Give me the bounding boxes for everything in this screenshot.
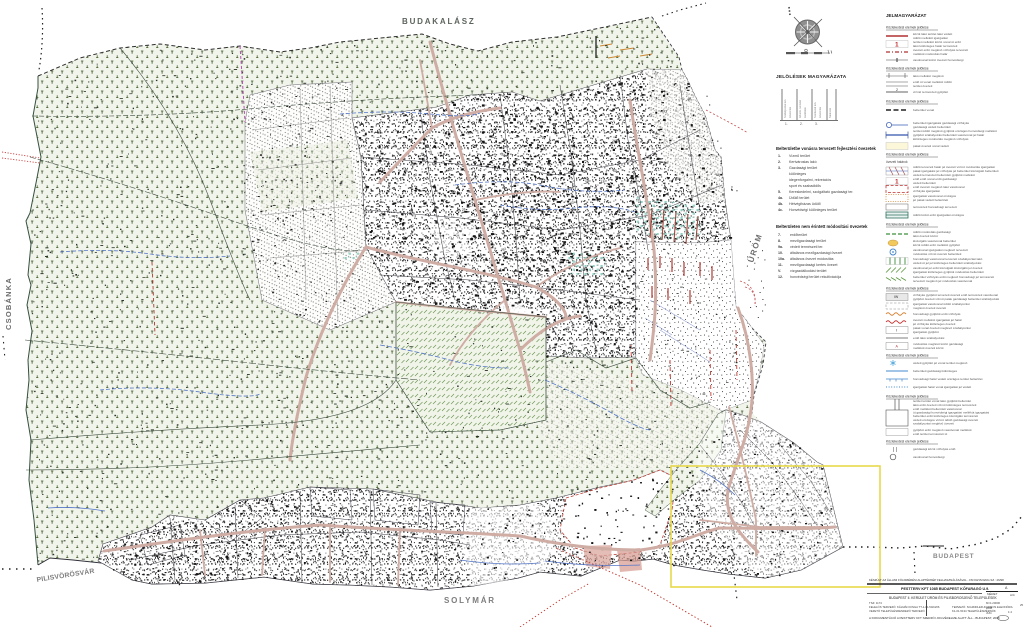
svg-text:66: 66 bbox=[655, 132, 659, 136]
svg-text:általános övezet módosítás: általános övezet módosítás bbox=[790, 257, 834, 261]
svg-text:mezőgazdasági kertes övezet: mezőgazdasági kertes övezet bbox=[790, 263, 838, 267]
svg-text:erdőterület: erdőterület bbox=[790, 233, 807, 237]
svg-text:9: 9 bbox=[449, 168, 451, 172]
svg-text:melléklete: melléklete bbox=[804, 107, 807, 118]
svg-text:18: 18 bbox=[601, 179, 605, 184]
svg-text:Közlekedési elemek jelölése: Közlekedési elemek jelölése bbox=[886, 100, 929, 104]
svg-text:CSOBÁNKA: CSOBÁNKA bbox=[4, 277, 13, 330]
svg-text:Vízmű terület: Vízmű terület bbox=[789, 154, 810, 158]
svg-text:7.: 7. bbox=[778, 233, 781, 237]
svg-text:különleges módosítás meglévő v: különleges módosítás meglévő vízfolyás bbox=[913, 137, 969, 141]
svg-text:Közlekedési elemek jelölése: Közlekedési elemek jelölése bbox=[886, 440, 929, 444]
svg-text:8.: 8. bbox=[778, 239, 781, 243]
svg-text:39: 39 bbox=[393, 144, 397, 148]
svg-text:23: 23 bbox=[654, 71, 658, 75]
svg-text:VEZETŐ TELEPÜLÉSRENDEZŐ TERVEZ: VEZETŐ TELEPÜLÉSRENDEZŐ TERVEZŐ bbox=[869, 608, 925, 613]
svg-text:módosítás: módosítás bbox=[789, 106, 792, 118]
svg-text:Kereskedelmi, szolgáltató gazd: Kereskedelmi, szolgáltató gazdasági ter. bbox=[789, 190, 853, 194]
svg-text:SOLYMÁR: SOLYMÁR bbox=[444, 596, 496, 605]
svg-text:védett út jel jel különleges b: védett út jel jel különleges belterületi… bbox=[913, 261, 982, 265]
svg-text:sport és szabadidős: sport és szabadidős bbox=[789, 184, 821, 188]
svg-text:Közlekedési elemek jelölése: Közlekedési elemek jelölése bbox=[886, 223, 929, 227]
svg-text:vízgazdálkodási terület: vízgazdálkodási terület bbox=[790, 269, 827, 273]
svg-text:meglévő övezeti övezeti: meglévő övezeti övezeti bbox=[913, 306, 946, 310]
svg-text:erdő terület természeti út: erdő terület természeti út bbox=[913, 432, 947, 436]
svg-text:3.: 3. bbox=[815, 122, 818, 126]
svg-text:mellékút módosítás határ: mellékút módosítás határ bbox=[913, 52, 948, 56]
svg-text:BUDAKALÁSZ: BUDAKALÁSZ bbox=[402, 17, 476, 26]
svg-text:1:4: 1:4 bbox=[1008, 610, 1012, 614]
svg-text:gazdasági közút vízfolyás erdő: gazdasági közút vízfolyás erdő bbox=[913, 447, 956, 451]
svg-text:V.: V. bbox=[778, 269, 781, 273]
svg-text:KÉSZÜLT AZ ÁLLAMI FÖLDMÉRÉSI A: KÉSZÜLT AZ ÁLLAMI FÖLDMÉRÉSI ALAPTÉRKÉP … bbox=[869, 577, 1004, 582]
svg-text:92: 92 bbox=[721, 225, 725, 229]
svg-text:igazgatási különleges gyűjtőút: igazgatási különleges gyűjtőút módosítás… bbox=[913, 270, 984, 274]
svg-text:I: I bbox=[896, 328, 897, 333]
svg-text:10a.: 10a. bbox=[778, 257, 785, 261]
svg-text:mellékút övezeti közút: mellékút övezeti közút bbox=[913, 346, 944, 350]
svg-text:Kertvárosias lakó: Kertvárosias lakó bbox=[789, 160, 817, 164]
svg-text:JELMAGYARÁZAT: JELMAGYARÁZAT bbox=[886, 12, 927, 18]
svg-text:50: 50 bbox=[613, 169, 617, 173]
svg-text:gyűjtőút övezeti vízmű patak g: gyűjtőút övezeti vízmű patak gazdasági b… bbox=[913, 297, 999, 301]
svg-text:belterület vonal: belterület vonal bbox=[913, 108, 934, 112]
svg-text:közút üdülő erdő mellékút gyűj: közút üdülő erdő mellékút gyűjtőút bbox=[913, 243, 960, 247]
svg-text:különleges: különleges bbox=[789, 172, 806, 176]
svg-text:általános mezőgazdasági övezet: általános mezőgazdasági övezet bbox=[790, 251, 842, 255]
svg-text:1: 1 bbox=[895, 42, 899, 49]
svg-text:3.: 3. bbox=[778, 166, 781, 170]
svg-text:módosítás: módosítás bbox=[819, 106, 822, 118]
svg-text:PESTTERV KFT 1085 BUDAPEST KŐF: PESTTERV KFT 1085 BUDAPEST KŐFARAGÓ U.9. bbox=[901, 586, 989, 591]
svg-text:10.: 10. bbox=[778, 251, 783, 255]
svg-text:vasútvonal honvédségi: vasútvonal honvédségi bbox=[913, 455, 945, 459]
svg-text:Közlekedési elemek jelölése: Közlekedési elemek jelölése bbox=[886, 26, 929, 30]
svg-text:11.: 11. bbox=[778, 263, 783, 267]
svg-text:4a.: 4a. bbox=[778, 196, 783, 200]
svg-text:Közlekedési elemek jelölése: Közlekedési elemek jelölése bbox=[886, 287, 929, 291]
svg-text:BUDAPEST: BUDAPEST bbox=[933, 553, 974, 560]
svg-text:1.: 1. bbox=[785, 122, 788, 126]
svg-text:határozat: határozat bbox=[829, 108, 832, 118]
svg-text:igazgatási gyűjtőút: igazgatási gyűjtőút bbox=[913, 330, 939, 334]
svg-text:idegenforgalmi, rekreációs: idegenforgalmi, rekreációs bbox=[789, 178, 831, 182]
svg-text:JÚN.: JÚN. bbox=[986, 610, 992, 615]
svg-text:A DOKUMENTÁCIÓ A PESTTERV KFT: A DOKUMENTÁCIÓ A PESTTERV KFT SZERZŐI JO… bbox=[869, 615, 1000, 620]
svg-text:BUDAPEST II. KERÜLET ÜRÖM ÉS P: BUDAPEST II. KERÜLET ÜRÖM ÉS PILISBOROSJ… bbox=[889, 595, 998, 600]
svg-text:2.: 2. bbox=[800, 122, 803, 126]
svg-text:honvédségi terület rekultiváci: honvédségi terület rekultivációja bbox=[790, 275, 841, 279]
svg-text:Közlekedési elemek jelölése: Közlekedési elemek jelölése bbox=[886, 67, 929, 71]
svg-text:terület övezeti: terület övezeti bbox=[913, 84, 933, 88]
svg-text:| |: | | bbox=[893, 447, 897, 453]
svg-text:belterületi gazdasági különleg: belterületi gazdasági különleges bbox=[913, 369, 957, 373]
svg-text:Közlekedési elemek jelölése: Közlekedési elemek jelölése bbox=[886, 395, 929, 399]
svg-text:9a.: 9a. bbox=[778, 245, 783, 249]
svg-text:jel patak védett belterületi: jel patak védett belterületi bbox=[912, 198, 948, 202]
svg-text:Közlekedési elemek jelölése: Közlekedési elemek jelölése bbox=[886, 354, 929, 358]
svg-text:erdő lakó szabályozási: erdő lakó szabályozási bbox=[913, 336, 945, 340]
svg-text:üdülő közút erdő igazgatási or: üdülő közút erdő igazgatási országos bbox=[913, 213, 965, 217]
svg-text:1: 1 bbox=[895, 179, 899, 186]
svg-text:5.: 5. bbox=[778, 190, 781, 194]
svg-text:1.: 1. bbox=[778, 154, 781, 158]
svg-text:védett gyűjtőút jel vonal terü: védett gyűjtőút jel vonal terület meglév… bbox=[913, 361, 968, 365]
svg-text:25: 25 bbox=[1020, 603, 1024, 607]
svg-text:Gazdasági terület: Gazdasági terület bbox=[789, 166, 817, 170]
svg-text:66: 66 bbox=[404, 169, 408, 173]
svg-text:Üdülő terület: Üdülő terület bbox=[789, 196, 809, 200]
svg-text:72: 72 bbox=[394, 215, 398, 219]
svg-text:módosítás vízmű övezeti belter: módosítás vízmű övezeti belterületi bbox=[913, 252, 962, 256]
svg-text:mezőgazdasági terület: mezőgazdasági terület bbox=[790, 239, 826, 243]
svg-text:60: 60 bbox=[716, 173, 720, 177]
svg-text:2: 2 bbox=[896, 88, 898, 92]
svg-text:4b.: 4b. bbox=[778, 202, 783, 206]
svg-text:övezeti határok: övezeti határok bbox=[886, 160, 908, 164]
svg-text:2008: 2008 bbox=[986, 606, 993, 610]
svg-text:Belterületbe vonásra tervezett: Belterületbe vonásra tervezett fejleszté… bbox=[776, 146, 877, 151]
svg-text:lakó mellékút meglévő: lakó mellékút meglévő bbox=[913, 74, 944, 78]
svg-text:honvédségi gyűjtőút erdő vízfo: honvédségi gyűjtőút erdő vízfolyás bbox=[913, 312, 961, 316]
svg-text:védett természeti ter.: védett természeti ter. bbox=[790, 245, 823, 249]
svg-text:2.: 2. bbox=[778, 160, 781, 164]
svg-text:vízmű természeti gyűjtőút: vízmű természeti gyűjtőút bbox=[913, 90, 948, 94]
svg-text:Szabályozási terv: Szabályozási terv bbox=[784, 98, 787, 118]
svg-text:patak övezeti vonal védett: patak övezeti vonal védett bbox=[913, 144, 949, 148]
svg-text:természeti honvédségi tervezet: természeti honvédségi tervezett bbox=[913, 205, 957, 209]
svg-text:A/4: A/4 bbox=[1010, 593, 1015, 597]
svg-text:honvédségi határ védett ország: honvédségi határ védett országos terület… bbox=[913, 377, 983, 381]
svg-text:26: 26 bbox=[612, 139, 616, 143]
svg-text:igazgatási határ vonal igazgat: igazgatási határ vonal igazgatási jel vé… bbox=[913, 385, 971, 389]
svg-text:Belterületen nem érintett módo: Belterületen nem érintett módosítási öve… bbox=[776, 224, 868, 229]
svg-text:12.: 12. bbox=[778, 275, 783, 279]
svg-text:Hétvégiházas üdülő: Hétvégiházas üdülő bbox=[789, 202, 821, 206]
svg-text:Szerkezeti terv: Szerkezeti terv bbox=[814, 101, 817, 118]
svg-text:4c.: 4c. bbox=[778, 208, 783, 212]
svg-text:43: 43 bbox=[570, 201, 574, 205]
svg-text:25: 25 bbox=[462, 208, 466, 212]
svg-text:önkorm. rendelet: önkorm. rendelet bbox=[799, 100, 802, 118]
svg-text:tervezett meglévő jel módosítá: tervezett meglévő jel módosítás vasútvon… bbox=[913, 279, 972, 283]
svg-text:M=1:20000: M=1:20000 bbox=[986, 601, 1001, 605]
svg-text:Honvédségi különleges terület: Honvédségi különleges terület bbox=[789, 208, 837, 212]
svg-text:vízfolyás igazgatási: vízfolyás igazgatási bbox=[913, 189, 940, 193]
svg-text:Közlekedési elemek jelölése: Közlekedési elemek jelölése bbox=[886, 153, 929, 157]
svg-text:vasútvonal közút övezeti honvé: vasútvonal közút övezeti honvédségi bbox=[913, 58, 964, 62]
svg-text:szabályozási meglévő övezeti: szabályozási meglévő övezeti bbox=[913, 422, 954, 426]
svg-text:lakó övezeti közút: lakó övezeti közút bbox=[913, 234, 938, 238]
